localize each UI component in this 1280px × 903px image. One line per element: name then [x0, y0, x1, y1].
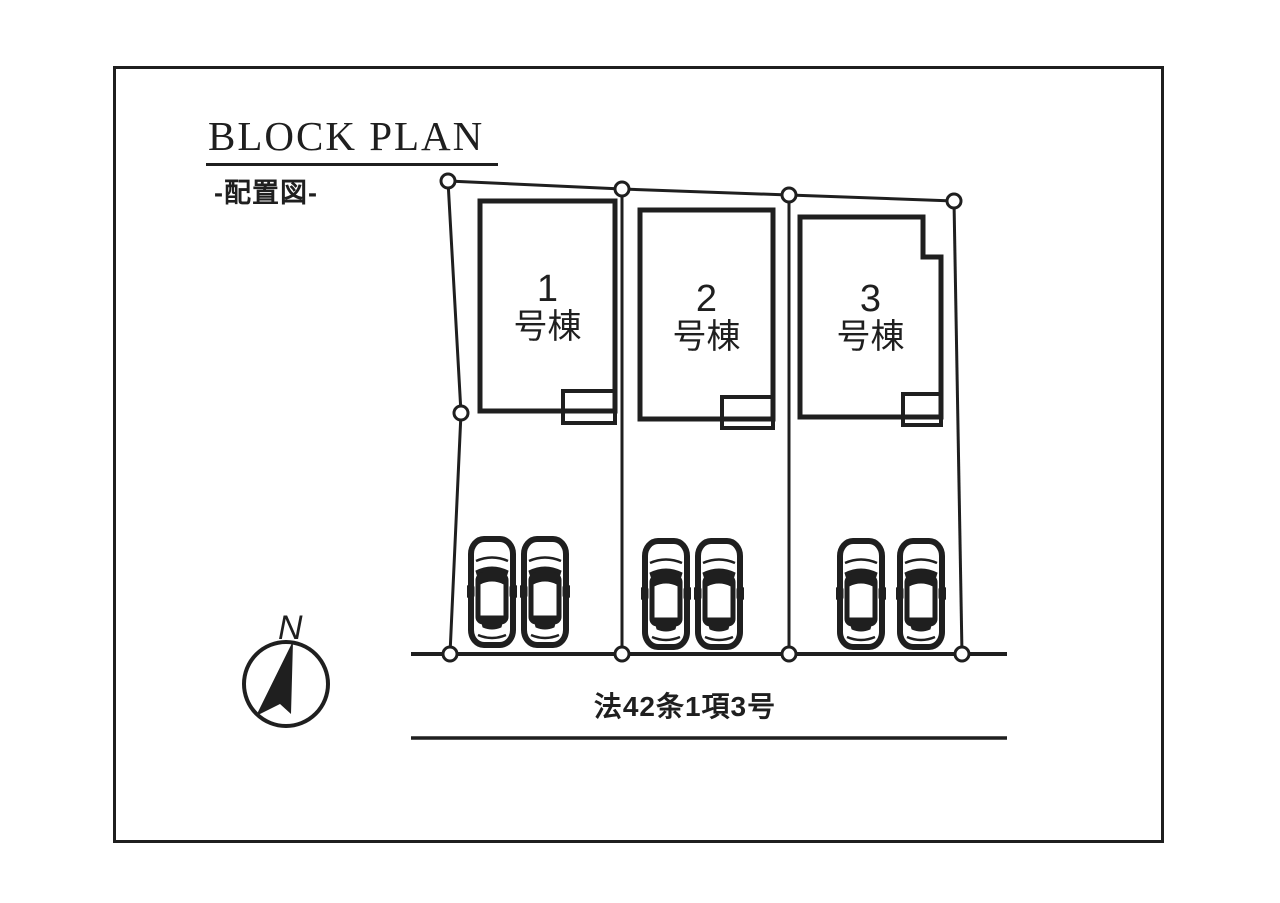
boundary-marker	[782, 647, 796, 661]
boundary-marker	[955, 647, 969, 661]
car-icon	[836, 541, 886, 647]
boundary-marker	[947, 194, 961, 208]
building-1-number: 1	[480, 270, 615, 310]
building-1-label: 1 号棟	[480, 270, 615, 345]
car-icon	[896, 541, 946, 647]
building-3-label: 3 号棟	[800, 280, 941, 355]
parking-cars	[467, 539, 946, 647]
boundary-marker	[441, 174, 455, 188]
car-icon	[520, 539, 570, 645]
building-1-suffix: 号棟	[480, 310, 615, 345]
building-2-label: 2 号棟	[640, 280, 773, 355]
boundary-marker	[782, 188, 796, 202]
car-icon	[694, 541, 744, 647]
boundary-marker	[443, 647, 457, 661]
building-3-suffix: 号棟	[800, 320, 941, 355]
building-3-number: 3	[800, 280, 941, 320]
building-2-suffix: 号棟	[640, 320, 773, 355]
car-icon	[641, 541, 691, 647]
boundary-marker	[615, 182, 629, 196]
car-icon	[467, 539, 517, 645]
north-label: N	[278, 609, 303, 648]
north-compass-icon	[244, 641, 328, 726]
boundary-marker	[454, 406, 468, 420]
boundary-marker	[615, 647, 629, 661]
road-type-label: 法42条1項3号	[500, 685, 870, 725]
site-plan-drawing	[0, 0, 1280, 903]
building-2-number: 2	[640, 280, 773, 320]
